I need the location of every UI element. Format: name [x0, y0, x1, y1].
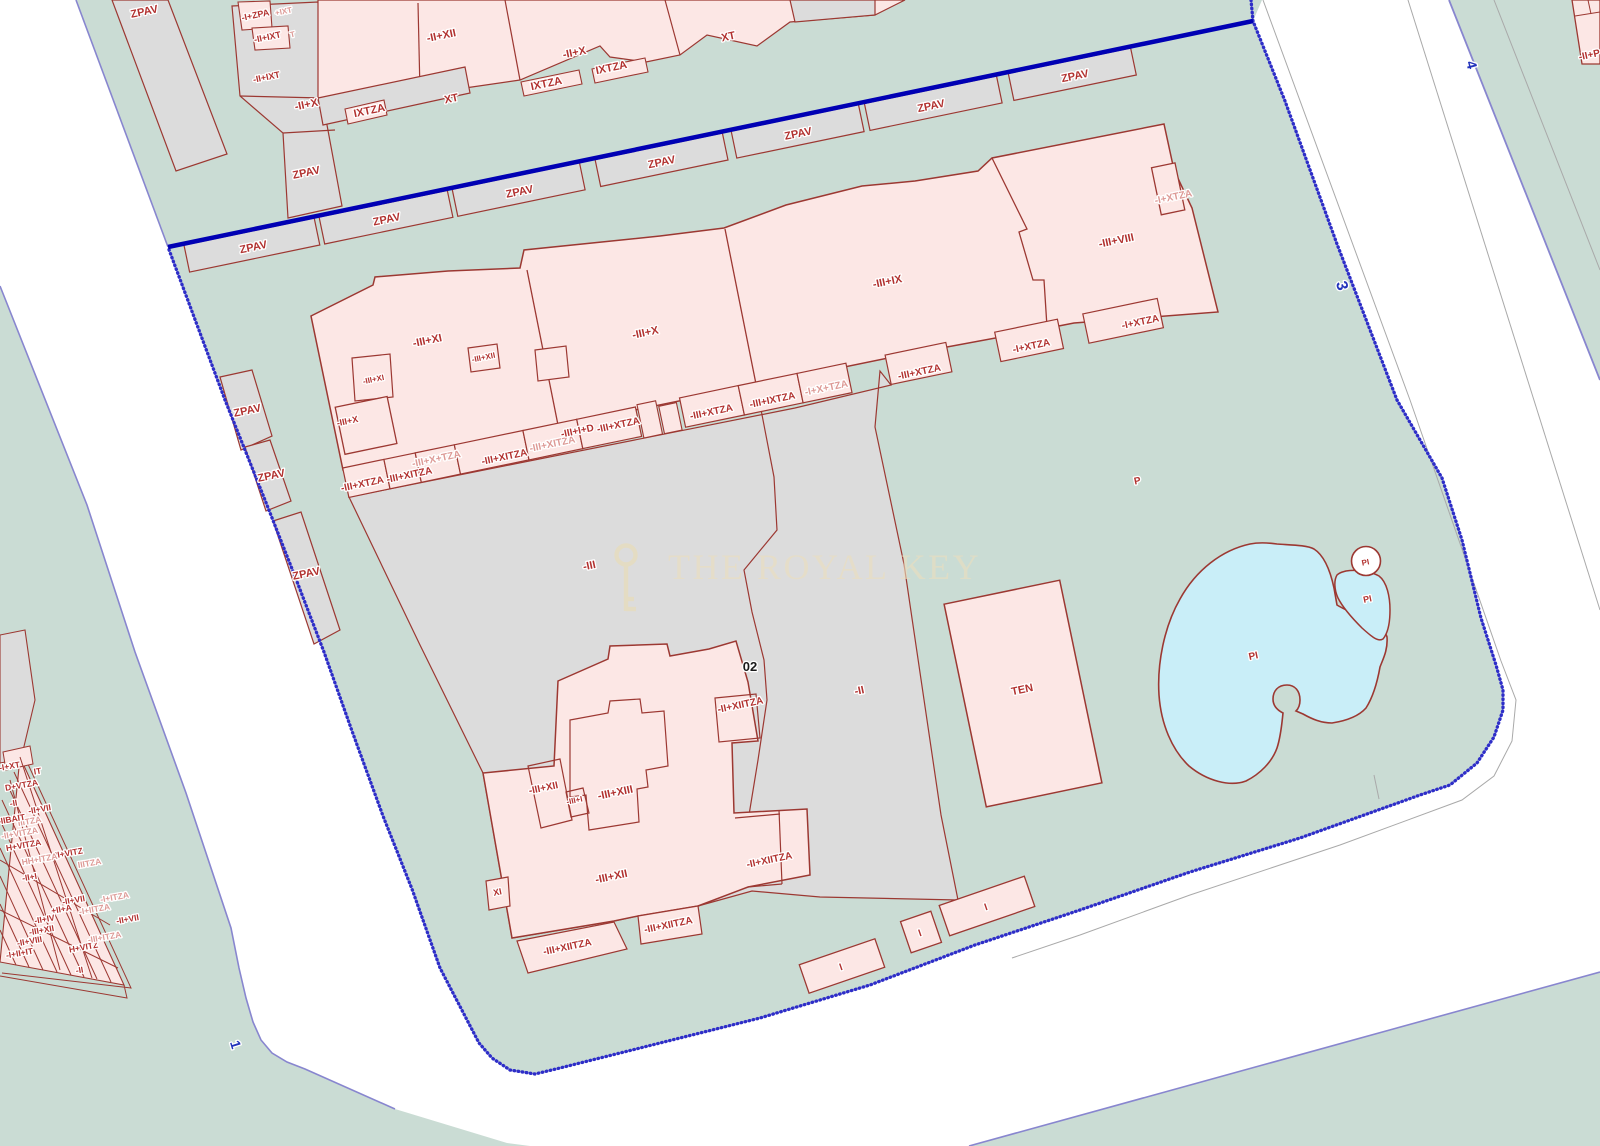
svg-text:-III: -III [582, 559, 597, 573]
svg-text:THE ROYAL KEY: THE ROYAL KEY [668, 547, 981, 587]
svg-text:02: 02 [743, 659, 757, 674]
